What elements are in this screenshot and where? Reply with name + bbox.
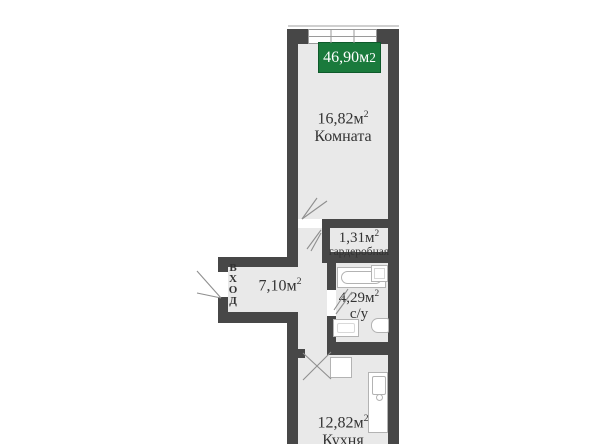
living-room-area: 16,82м2	[298, 110, 388, 128]
left-wall-upper	[287, 29, 298, 257]
fridge-icon	[330, 357, 352, 378]
total-area-sup: 2	[369, 50, 376, 66]
hallway-label: 7,10м2	[240, 277, 320, 295]
total-area-value: 46,90м	[323, 49, 369, 67]
kitchen-door-stub	[296, 349, 305, 358]
living-room-bottom-wall	[322, 219, 388, 228]
living-room-name: Комната	[298, 128, 388, 145]
entrance-label: В Х О Д	[227, 263, 239, 307]
living-room-label: 16,82м2 Комната	[298, 110, 388, 145]
wardrobe-name: гардеробная	[326, 246, 392, 258]
bathroom-bottom-wall	[327, 342, 399, 355]
floor-plan: 46,90м2 16,82м2 Комната 1,31м2 гардеробн…	[0, 0, 600, 444]
kitchen-area: 12,82м2	[298, 413, 388, 432]
bathroom-area: 4,29м2	[330, 289, 388, 306]
total-area-badge: 46,90м2	[318, 42, 381, 73]
washer-icon	[371, 265, 388, 282]
washer-detail	[374, 268, 385, 279]
bath-sink-basin	[337, 323, 355, 333]
bathroom-left-wall-upper	[327, 263, 336, 290]
kitchen-name: Кухня	[298, 432, 388, 444]
entrance-door-swing-line	[197, 271, 221, 298]
bathroom-name: с/у	[330, 306, 388, 322]
wardrobe-label: 1,31м2 гардеробная	[326, 229, 392, 259]
kitchen-sink-icon	[372, 376, 386, 395]
kitchen-label: 12,82м2 Кухня	[298, 413, 388, 444]
kitchen-faucet-icon	[376, 394, 383, 401]
wardrobe-area: 1,31м2	[326, 229, 392, 246]
bathroom-label: 4,29м2 с/у	[330, 289, 388, 322]
window-sill-line	[288, 25, 399, 27]
left-wall-lower	[287, 312, 298, 444]
hallway-bottom-wall	[218, 312, 296, 323]
